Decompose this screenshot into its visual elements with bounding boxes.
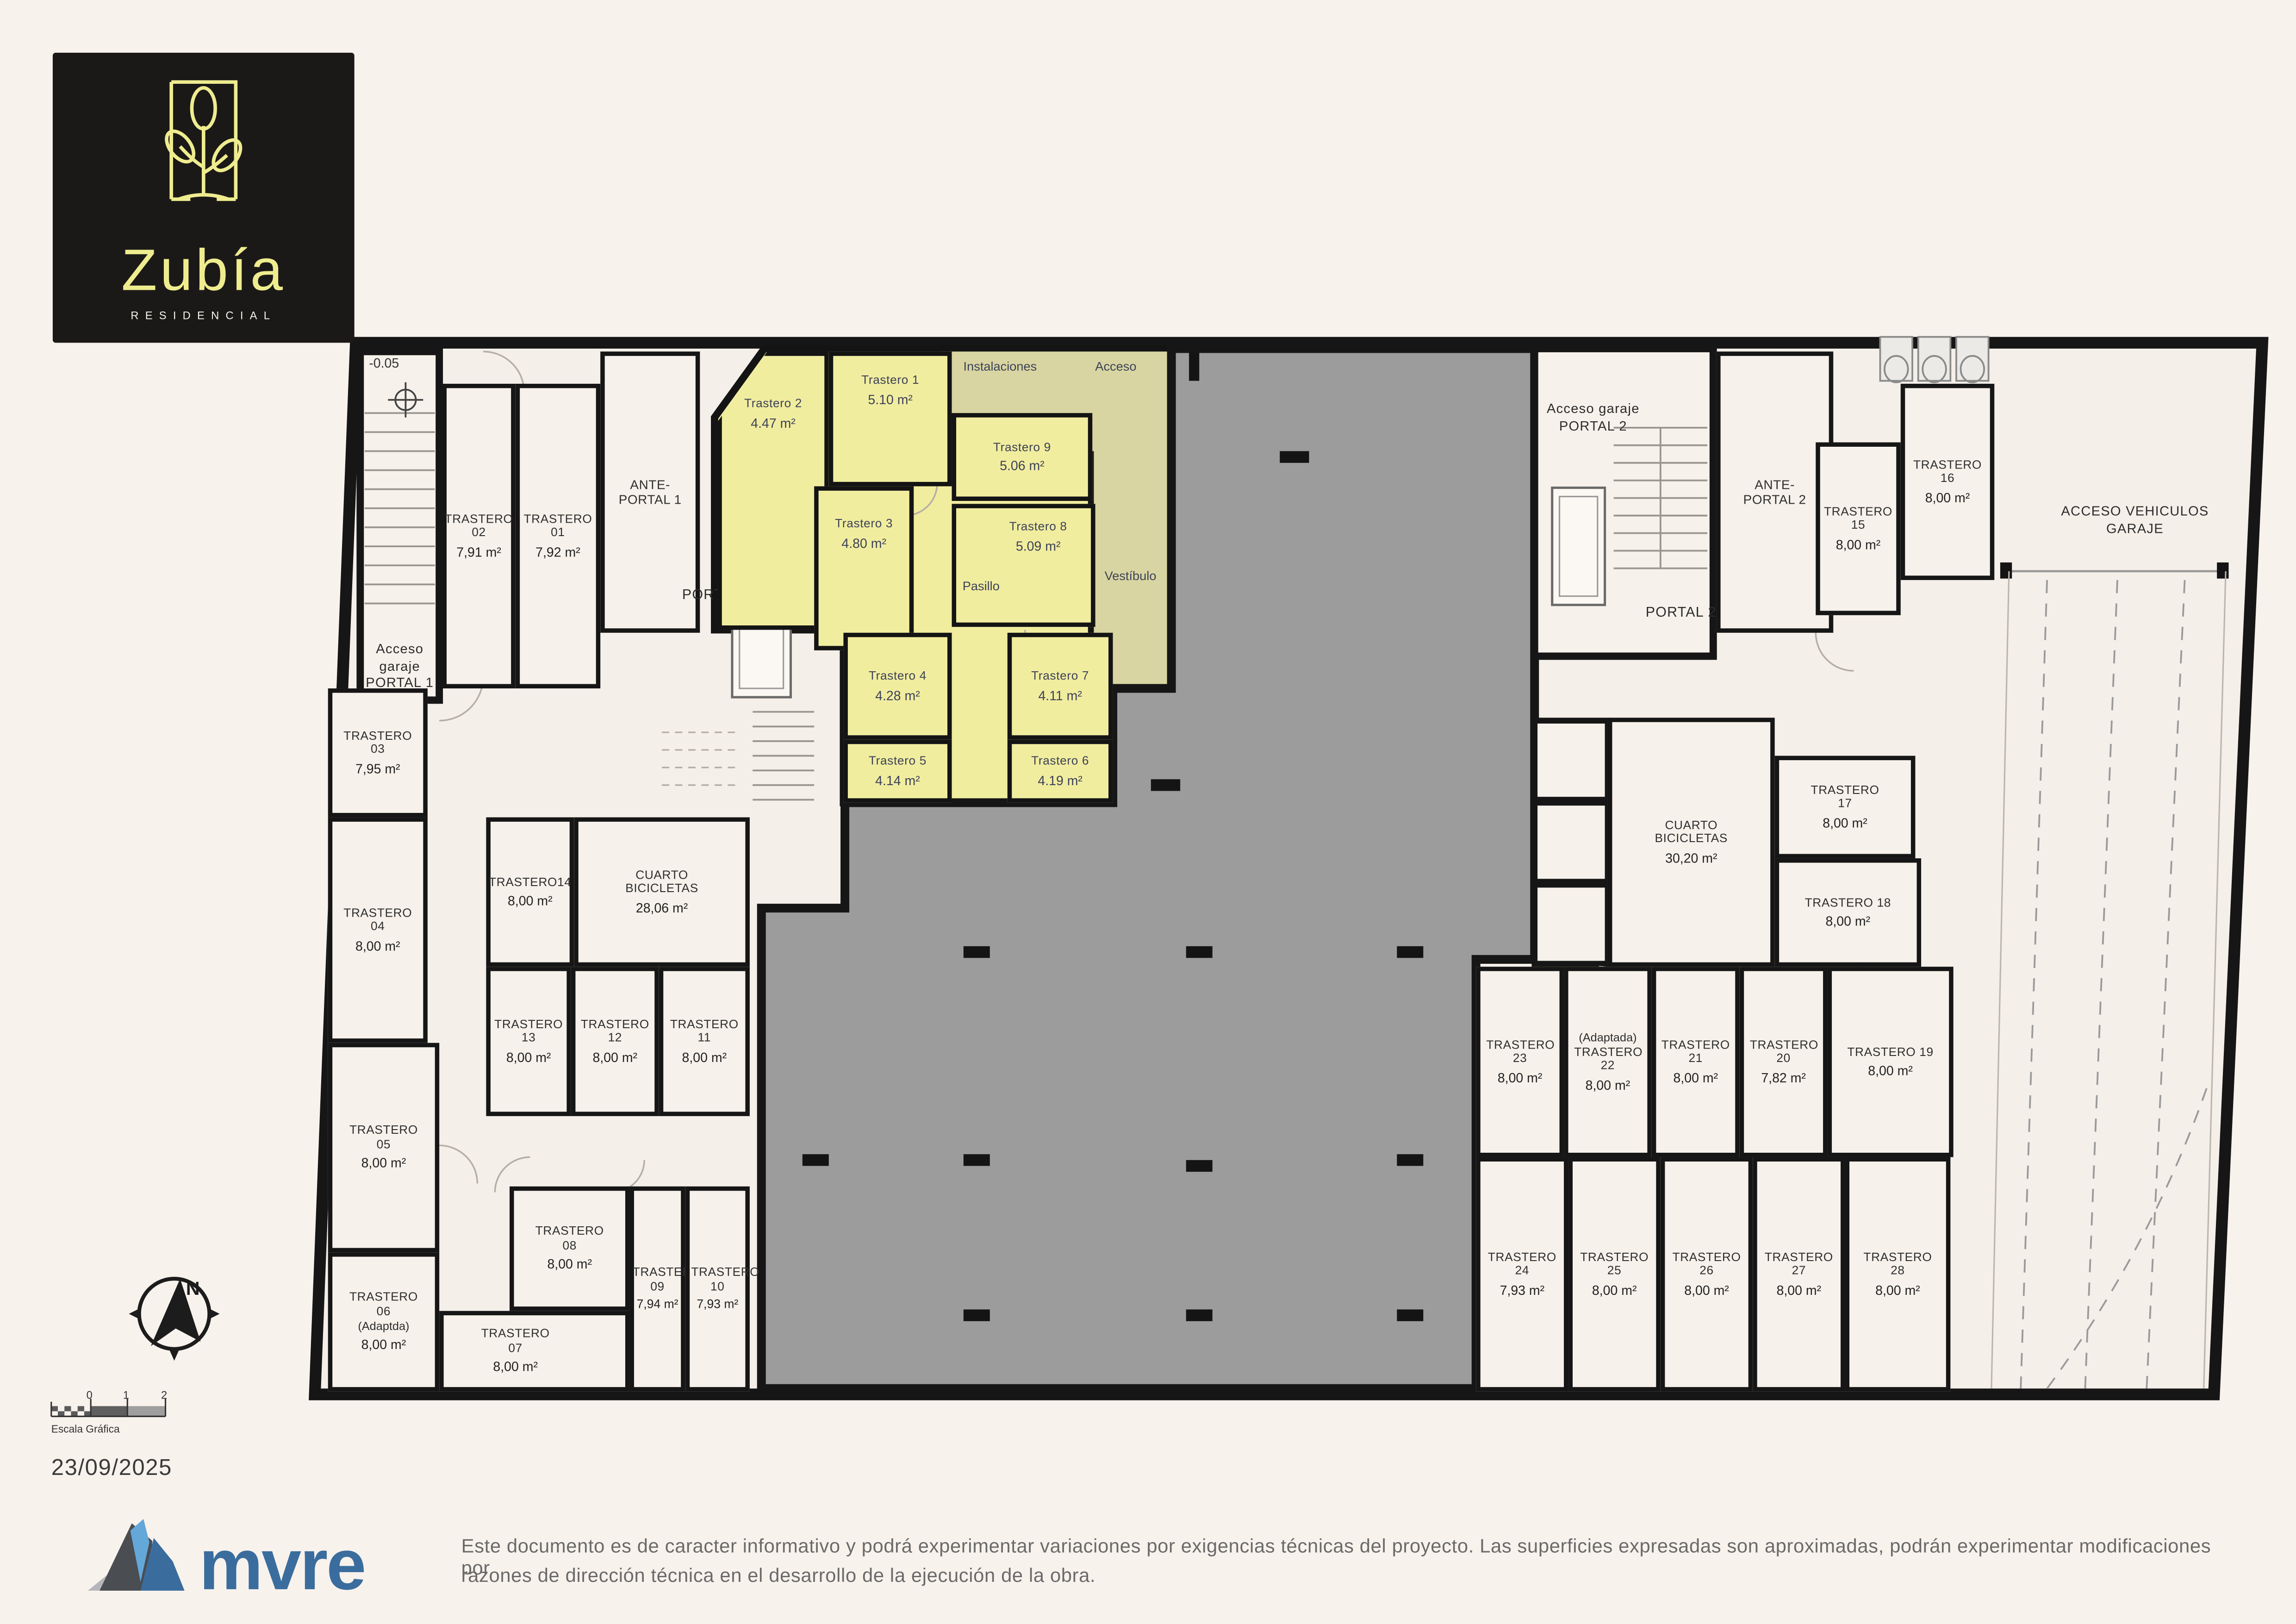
room-trastero-14: TRASTERO14 8,00 m² <box>486 817 574 967</box>
mvre-wordmark: mvre <box>199 1524 365 1605</box>
room-trastero-23: TRASTERO 23 8,00 m² <box>1476 967 1564 1157</box>
room-trastero-07: TRASTERO 07 8,00 m² <box>439 1311 629 1392</box>
elevator-icon <box>1552 488 1605 605</box>
scale-tick-2: 2 <box>161 1388 167 1401</box>
disclaimer-line-2: razones de dirección técnica en el desar… <box>461 1564 2240 1586</box>
room-trastero-20: TRASTERO 20 7,82 m² <box>1740 967 1828 1157</box>
room-trastero-09: TRASTERO 09 7,94 m² <box>629 1187 685 1392</box>
room-trastero-24: TRASTERO 24 7,93 m² <box>1476 1157 1568 1391</box>
logo-subtitle: RESIDENCIAL <box>131 309 276 322</box>
floor-plan-page: N mvre <box>0 0 2296 1624</box>
svg-text:N: N <box>186 1278 200 1299</box>
portal2-label: PORTAL 2 <box>1625 605 1736 623</box>
scale-tick-1: 1 <box>123 1388 129 1401</box>
room-trastero-02: TRASTERO 02 7,91 m² <box>442 384 516 688</box>
room-trastero-h9: Trastero 9 5.06 m² <box>952 413 1093 501</box>
scale-caption: Escala Gráfica <box>51 1422 120 1435</box>
acceso-vehiculos-garaje-label: ACCESO VEHICULOS GARAJE <box>2044 504 2226 537</box>
room-trastero-18: TRASTERO 18 8,00 m² <box>1775 858 1921 967</box>
tree-icon <box>137 70 269 211</box>
room-trastero-22: (Adaptada) TRASTERO 22 8,00 m² <box>1564 967 1652 1157</box>
graphic-scale <box>51 1399 166 1417</box>
room-trastero-h5: Trastero 5 4.14 m² <box>843 740 952 803</box>
cuarto-bicicletas-2: CUARTO BICICLETAS 30,20 m² <box>1608 718 1775 967</box>
room-trastero-12: TRASTERO 12 8,00 m² <box>571 967 659 1116</box>
room-trastero-h6: Trastero 6 4.19 m² <box>1008 740 1113 803</box>
room-trastero-21: TRASTERO 21 8,00 m² <box>1652 967 1740 1157</box>
zubia-logo: Zubía RESIDENCIAL <box>53 53 355 343</box>
room-trastero-28: TRASTERO 28 8,00 m² <box>1845 1157 1951 1391</box>
logo-title: Zubía <box>121 242 286 300</box>
compass-north-icon: N <box>129 1278 219 1361</box>
room-trastero-19: TRASTERO 19 8,00 m² <box>1828 967 1954 1157</box>
room-trastero-04: TRASTERO 04 8,00 m² <box>328 817 428 1043</box>
room-trastero-03: TRASTERO 03 7,95 m² <box>328 688 428 817</box>
vestibulo-label: Vestíbulo <box>1085 570 1176 584</box>
room-trastero-h7: Trastero 7 4.11 m² <box>1008 633 1113 740</box>
room-trastero-13: TRASTERO 13 8,00 m² <box>486 967 571 1116</box>
room-trastero-27: TRASTERO 27 8,00 m² <box>1753 1157 1845 1391</box>
room-trastero-10: TRASTERO 10 7,93 m² <box>685 1187 750 1392</box>
acceso-garaje-portal2-label: Acceso garaje PORTAL 2 <box>1546 401 1640 435</box>
room-trastero-15: TRASTERO 15 8,00 m² <box>1816 443 1901 615</box>
instalaciones-label: Instalaciones <box>945 360 1056 374</box>
room-trastero-08: TRASTERO 08 8,00 m² <box>510 1187 629 1311</box>
room-trastero-17: TRASTERO 17 8,00 m² <box>1775 756 1916 858</box>
room-trastero-06: TRASTERO 06 (Adaptda) 8,00 m² <box>328 1252 439 1392</box>
room-trastero-25: TRASTERO 25 8,00 m² <box>1568 1157 1661 1391</box>
acceso-garaje-portal1-label: Acceso garaje PORTAL 1 <box>357 642 442 692</box>
room-trastero-11: TRASTERO 11 8,00 m² <box>659 967 750 1116</box>
room-trastero-16: TRASTERO 16 8,00 m² <box>1901 384 1994 580</box>
pasillo-label: Pasillo <box>937 580 1025 594</box>
plan-date: 23/09/2025 <box>51 1456 172 1482</box>
level-marker: -0.05 <box>369 356 399 371</box>
room-trastero-h3: Trastero 3 4.80 m² <box>814 486 914 650</box>
utility-cells <box>1535 721 1608 964</box>
acceso-label: Acceso <box>1067 360 1164 374</box>
room-trastero-26: TRASTERO 26 8,00 m² <box>1661 1157 1753 1391</box>
room-trastero-05: TRASTERO 05 8,00 m² <box>328 1043 439 1252</box>
mvre-logo: mvre <box>88 1519 365 1605</box>
room-trastero-01: TRASTERO 01 7,92 m² <box>516 384 601 688</box>
cuarto-bicicletas-1: CUARTO BICICLETAS 28,06 m² <box>574 817 750 967</box>
scale-tick-0: 0 <box>87 1388 93 1401</box>
room-trastero-h8: Trastero 8 5.09 m² <box>952 504 1095 627</box>
room-trastero-h4: Trastero 4 4.28 m² <box>843 633 952 740</box>
room-trastero-h1: Trastero 1 5.10 m² <box>829 351 952 486</box>
vent-icon <box>1880 337 1988 382</box>
